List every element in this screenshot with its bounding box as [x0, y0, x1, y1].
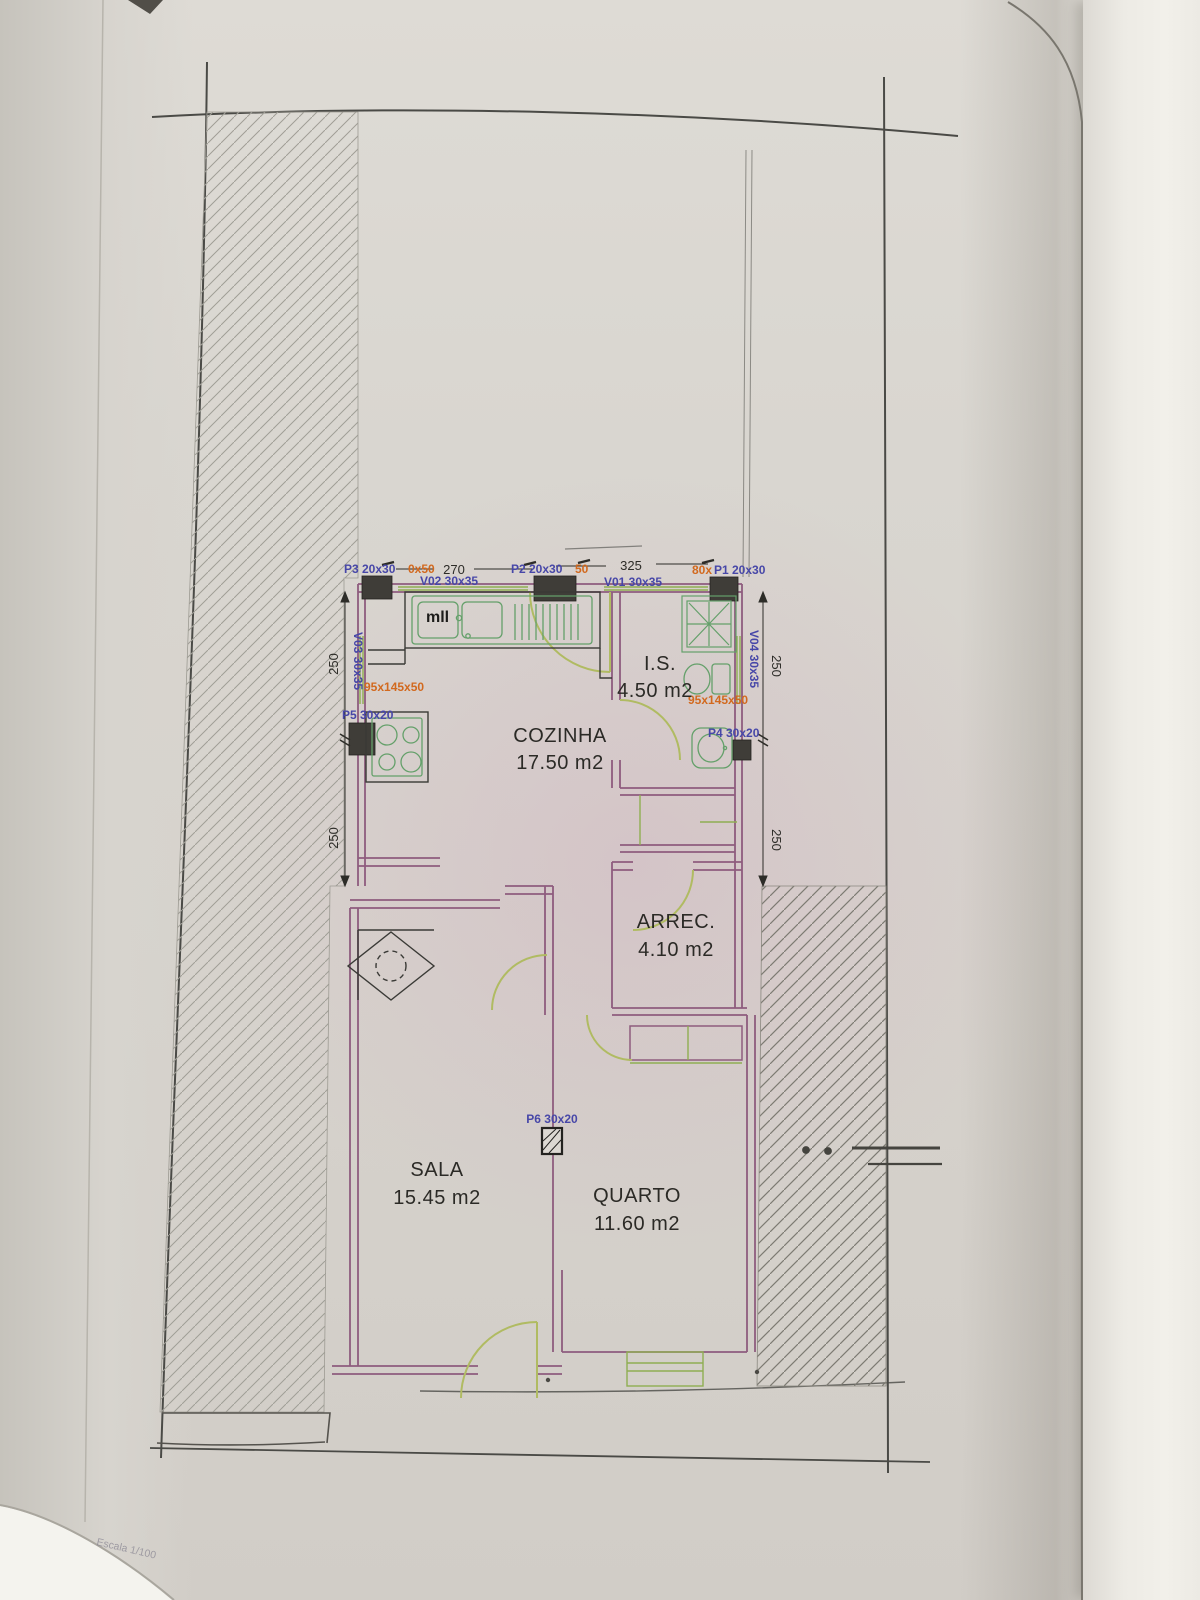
- pillar-p6: [542, 1128, 562, 1154]
- room-label-cozinha: COZINHA: [513, 725, 607, 747]
- shower-icon: [682, 596, 736, 652]
- door-label-p1-extra: 80x: [692, 563, 712, 577]
- kitchen-door-arc: [530, 592, 610, 672]
- dim-250-right-lower: 250: [769, 829, 784, 851]
- door-label-p6: P6 30x20: [526, 1112, 578, 1126]
- window-glazing: [360, 587, 742, 1386]
- room-area-is: 4.50 m2: [617, 680, 693, 702]
- neighbor-hatch-left: [157, 112, 358, 1445]
- door-label-p1: P1 20x30: [714, 563, 766, 577]
- door-label-p2: P2 20x30: [511, 562, 563, 576]
- window-label-v03: V03 30x35: [351, 632, 365, 690]
- pillar-p5: [349, 723, 375, 755]
- quarto-door-arc: [587, 1015, 632, 1060]
- room-area-arrec: 4.10 m2: [638, 939, 714, 961]
- pillar-p4: [733, 740, 751, 760]
- room-area-quarto: 11.60 m2: [594, 1213, 680, 1235]
- lintel-label-left: 95x145x50: [364, 680, 424, 694]
- entry-door-arc: [461, 1322, 537, 1398]
- pillar-p3: [362, 576, 392, 599]
- kitchen-note: mll: [426, 609, 449, 626]
- dim-325: 325: [620, 558, 642, 573]
- lintel-label-right: 95x145x50: [688, 693, 748, 707]
- room-area-sala: 15.45 m2: [393, 1187, 480, 1209]
- floor-plan-drawing: 270 325 250 250 250 250 P3 20x30 0x50 P2…: [0, 0, 1200, 1600]
- door-arcs: [461, 592, 693, 1398]
- door-label-p2-extra: 50: [575, 562, 589, 576]
- room-label-quarto: QUARTO: [593, 1185, 681, 1207]
- window-label-v04: V04 30x35: [747, 630, 761, 688]
- door-label-p3: P3 20x30: [344, 562, 396, 576]
- neighbor-hatch-right: [757, 886, 942, 1386]
- room-label-is: I.S.: [644, 653, 676, 675]
- door-label-p5: P5 30x20: [342, 708, 394, 722]
- door-label-p4: P4 30x20: [708, 726, 760, 740]
- room-area-cozinha: 17.50 m2: [516, 752, 603, 774]
- dim-250-right-upper: 250: [769, 655, 784, 677]
- cooktop-icon: [372, 718, 422, 776]
- room-label-sala: SALA: [410, 1159, 463, 1181]
- pillar-p1: [710, 577, 738, 601]
- fireplace-icon: [348, 930, 434, 1000]
- dim-250-left-lower: 250: [326, 827, 341, 849]
- window-label-v01: V01 30x35: [604, 575, 662, 589]
- dimension-lines: [340, 560, 768, 886]
- pillar-p2: [534, 576, 576, 601]
- room-label-arrec: ARREC.: [637, 911, 716, 933]
- window-label-v02: V02 30x35: [420, 574, 478, 588]
- is-door-arc: [620, 700, 680, 760]
- dim-250-left-upper: 250: [326, 653, 341, 675]
- hall-door-arc: [492, 955, 547, 1010]
